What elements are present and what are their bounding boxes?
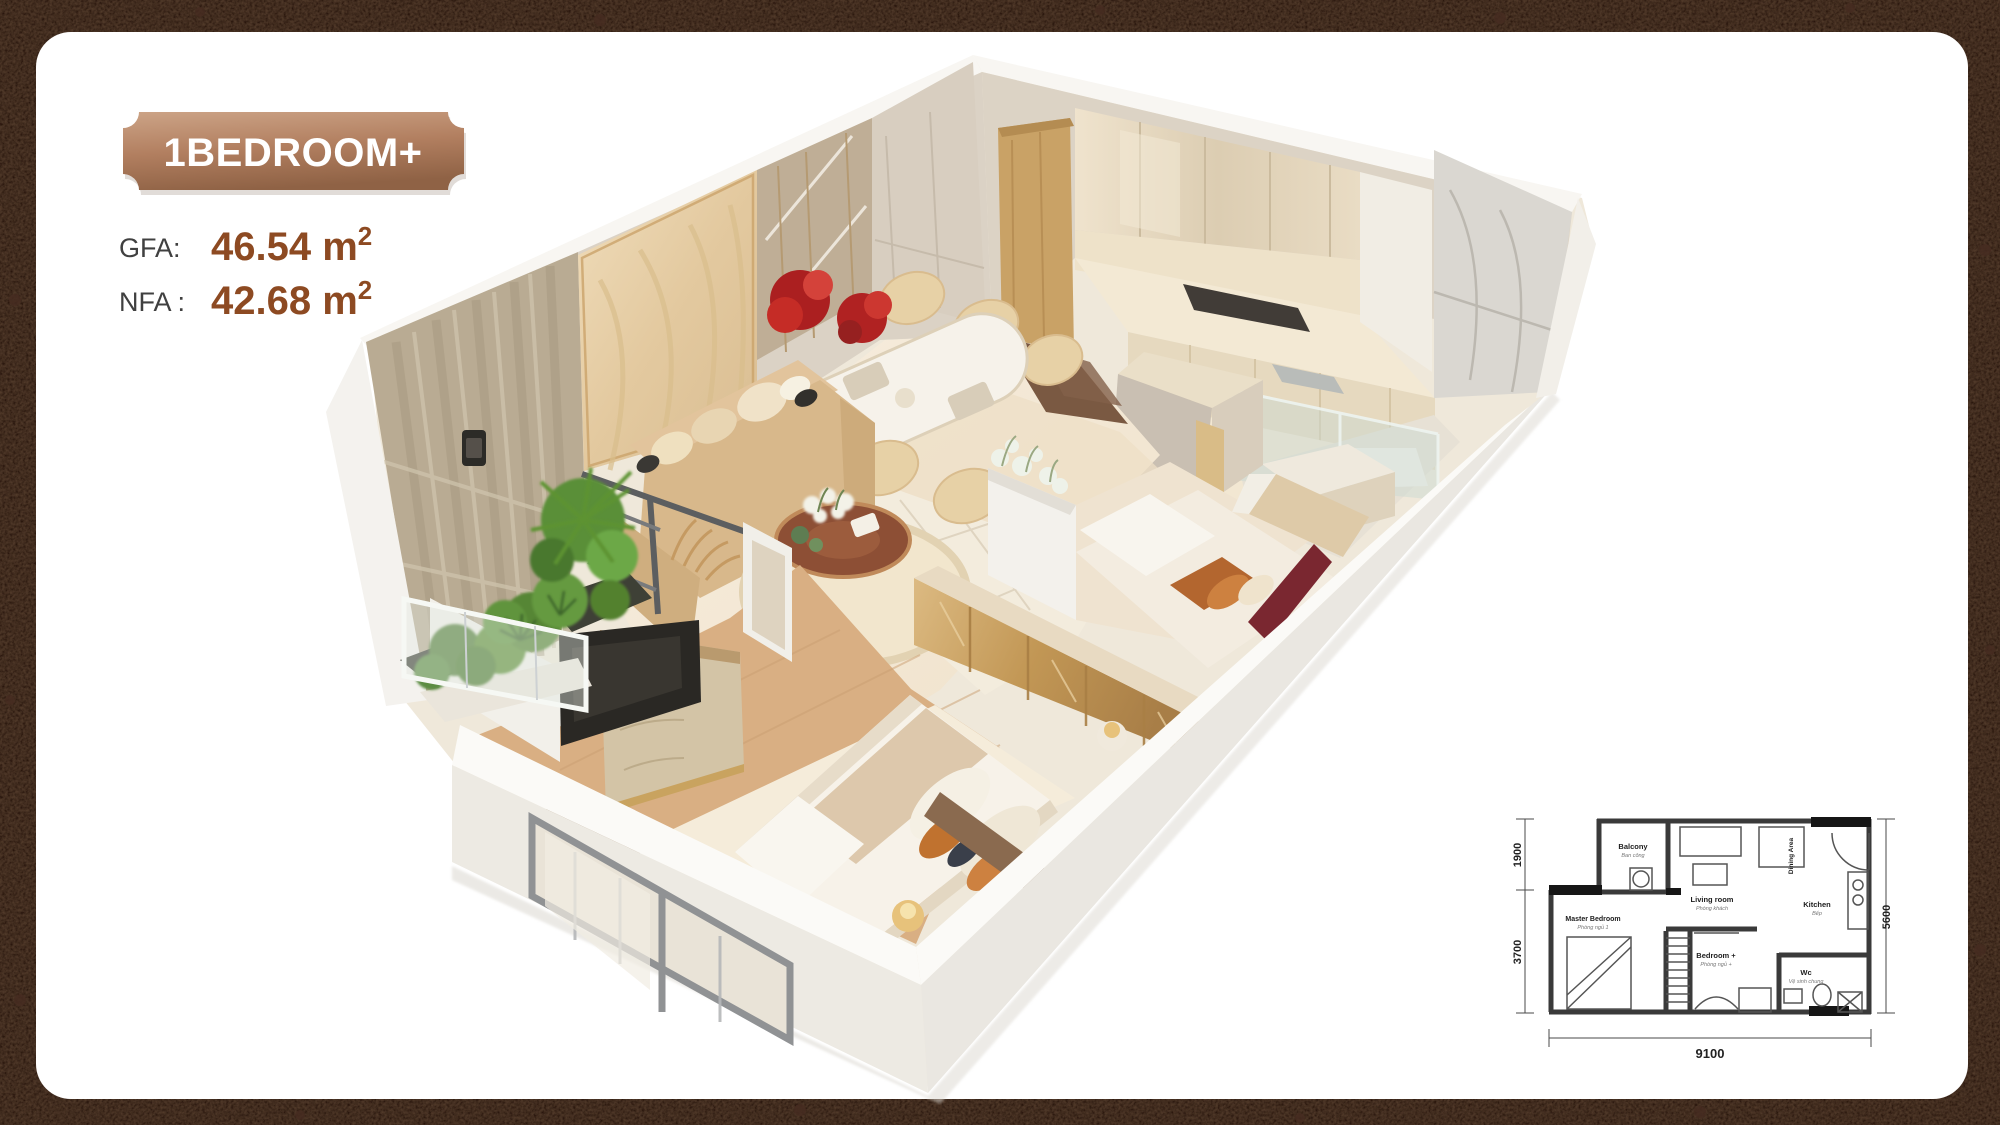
svg-text:5600: 5600 — [1881, 905, 1893, 929]
svg-text:Living room: Living room — [1691, 895, 1734, 904]
svg-text:Phòng ngủ 1: Phòng ngủ 1 — [1577, 924, 1608, 931]
svg-text:Dining Area: Dining Area — [1788, 838, 1795, 875]
svg-text:46.54 m2: 46.54 m2 — [211, 221, 372, 269]
svg-text:Wc: Wc — [1800, 968, 1811, 977]
svg-text:1BEDROOM+: 1BEDROOM+ — [164, 131, 423, 175]
svg-text:Master Bedroom: Master Bedroom — [1565, 916, 1620, 923]
svg-text:Kitchen: Kitchen — [1803, 900, 1831, 909]
svg-text:Ban công: Ban công — [1621, 853, 1645, 859]
svg-text:1900: 1900 — [1512, 843, 1524, 867]
svg-text:42.68 m2: 42.68 m2 — [211, 275, 372, 323]
svg-text:9100: 9100 — [1696, 1046, 1725, 1061]
svg-text:3700: 3700 — [1512, 940, 1524, 964]
svg-text:Vệ sinh chung: Vệ sinh chung — [1789, 979, 1825, 985]
svg-text:Phòng ngủ +: Phòng ngủ + — [1700, 961, 1732, 968]
svg-text:Phòng khách: Phòng khách — [1696, 906, 1728, 912]
svg-text:Bedroom +: Bedroom + — [1696, 951, 1736, 960]
svg-text:GFA:: GFA: — [119, 233, 181, 263]
svg-text:Balcony: Balcony — [1618, 842, 1648, 851]
svg-text:NFA :: NFA : — [119, 287, 185, 317]
svg-text:Bếp: Bếp — [1812, 910, 1822, 917]
